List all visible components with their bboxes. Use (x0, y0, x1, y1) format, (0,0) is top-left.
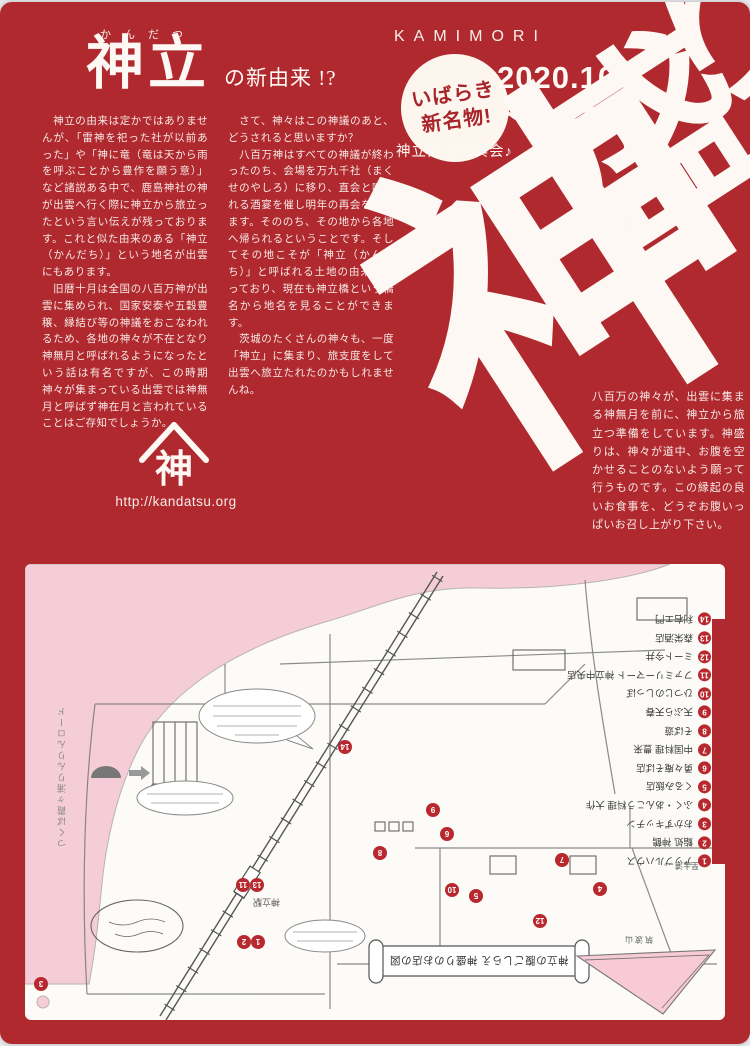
campaign-period: 2020.10.2 ～ 11.30 (497, 58, 644, 137)
legend-item-13: 13森栄酒店 (577, 629, 711, 648)
store-legend: 1アップルハウス2鮨処 神鶴3おかずキッチン4ふく・あんこう料理 大作5くるみ飯… (577, 610, 711, 870)
legend-number-badge: 5 (698, 780, 711, 793)
legend-item-6: 6勇々庵そば店 (577, 759, 711, 778)
store-map-panel: 神立駅 至土浦→ 筑波山 つくば霞ヶ浦りんりんロード 神立の腹ごしらえ 神盛りの… (25, 564, 725, 1020)
legend-number-badge: 6 (698, 762, 711, 775)
legend-label: 中国料理 豊来 (633, 742, 693, 756)
map-location-dot-14: 14 (338, 740, 352, 754)
legend-item-1: 1アップルハウス (577, 852, 711, 871)
page: 神盛り かんだつ 神立 の新由来 !? KAMIMORI いばらき 新名物! 2… (0, 0, 750, 1046)
red-ribbon (712, 619, 725, 864)
body-paragraph: 旧暦十月は全国の八百万神が出雲に集められ、国家安泰や五穀豊穣、縁結び等の神議をお… (42, 282, 208, 433)
legend-number-badge: 11 (698, 669, 711, 682)
legend-item-8: 8そば遊 (577, 722, 711, 741)
legend-item-10: 10ひつじのしっぽ (577, 684, 711, 703)
logo-kanji: 神 (155, 449, 193, 491)
map-location-dot-8: 8 (373, 846, 387, 860)
legend-number-badge: 13 (698, 631, 711, 644)
body-paragraph: 八百万神はすべての神議が終わったのち、会場を万九千社（まくせのやしろ）に移り、直… (228, 148, 394, 333)
period-start: 2020.10.2 (497, 58, 644, 98)
map-location-dot-5: 5 (469, 889, 483, 903)
legend-label: 利右エ門 (655, 612, 693, 626)
cycling-road-label: つくば霞ヶ浦りんりんロード (55, 648, 68, 848)
legend-number-badge: 14 (698, 613, 711, 626)
map-location-dot-12: 12 (533, 914, 547, 928)
legend-label: 天ぷら天春 (645, 705, 693, 719)
flyer: 神盛り かんだつ 神立 の新由来 !? KAMIMORI いばらき 新名物! 2… (0, 2, 750, 1044)
map-location-dot-9: 9 (426, 803, 440, 817)
period-end: ～ 11.30 (497, 98, 644, 138)
calligraphy-char-盛: 盛 (518, 4, 750, 281)
speech-bubbles (137, 689, 365, 952)
map-location-dot-4: 4 (593, 882, 607, 896)
legend-number-badge: 4 (698, 799, 711, 812)
body-paragraph: 茨城のたくさんの神々も、一度「神立」に集まり、旅支度をして出雲へ旅立たれたのかも… (228, 332, 394, 399)
legend-item-2: 2鮨処 神鶴 (577, 833, 711, 852)
pond-icon (37, 996, 49, 1008)
legend-label: 鮨処 神鶴 (652, 835, 693, 849)
map-location-dot-3: 3 (34, 977, 48, 991)
organizer-label: 神立商工振興会♪ (396, 140, 513, 161)
story-column-1: 神立の由来は定かではありませんが、「雷神を祀った社が以前あった」や「神に竜（竜は… (42, 114, 208, 433)
legend-number-badge: 3 (698, 817, 711, 830)
legend-label: アップルハウス (626, 854, 693, 868)
legend-number-badge: 10 (698, 687, 711, 700)
story-column-2: さて、神々はこの神議のあと、どうされると思いますか？ 八百万神はすべての神議が終… (228, 114, 394, 400)
page-title: 神立 (86, 35, 210, 93)
legend-label: 勇々庵そば店 (636, 761, 693, 775)
legend-number-badge: 8 (698, 724, 711, 737)
legend-item-9: 9天ぷら天春 (577, 703, 711, 722)
map-title-scroll: 神立の腹ごしらえ 神盛りのお店の図 (387, 953, 571, 968)
map-location-dot-2: 2 (237, 935, 251, 949)
legend-label: ふく・あんこう料理 大作 (586, 798, 693, 812)
map-location-dot-1: 1 (251, 935, 265, 949)
kamimori-description: 八百万の神々が、出雲に集まる神無月を前に、神立から旅立つ準備をしています。神盛り… (592, 388, 745, 534)
map-location-dot-11: 11 (236, 878, 250, 892)
arrow-icon (129, 766, 150, 780)
legend-label: おかずキッチン (626, 817, 693, 831)
cycling-road-area (25, 564, 670, 984)
mount-tsukuba-label: 筑波山 (623, 934, 653, 945)
map-location-dot-10: 10 (445, 883, 459, 897)
legend-item-11: 11ファミリーマート 神立中央店 (577, 666, 711, 685)
body-paragraph: 神立の由来は定かではありませんが、「雷神を祀った社が以前あった」や「神に竜（竜は… (42, 114, 208, 282)
legend-number-badge: 9 (698, 706, 711, 719)
body-paragraph: さて、神々はこの神議のあと、どうされると思いますか？ (228, 114, 394, 148)
legend-label: ミート今井 (645, 649, 693, 663)
legend-item-5: 5くるみ飯店 (577, 777, 711, 796)
legend-number-badge: 12 (698, 650, 711, 663)
mount-tsukuba-icon (577, 950, 715, 1014)
body-paragraph: 八百万の神々が、出雲に集まる神無月を前に、神立から旅立つ準備をしています。神盛り… (592, 388, 745, 534)
station-label: 神立駅 (253, 896, 280, 909)
legend-label: ファミリーマート 神立中央店 (567, 668, 693, 682)
legend-number-badge: 2 (698, 836, 711, 849)
legend-item-7: 7中国料理 豊来 (577, 740, 711, 759)
legend-label: 森栄酒店 (655, 631, 693, 645)
legend-label: くるみ飯店 (646, 780, 693, 794)
map-location-dot-7: 7 (555, 853, 569, 867)
map-location-dot-13: 13 (250, 878, 264, 892)
legend-label: ひつじのしっぽ (626, 687, 693, 701)
legend-label: そば遊 (664, 724, 693, 738)
legend-item-3: 3おかずキッチン (577, 815, 711, 834)
page-title-suffix: の新由来 !? (224, 62, 337, 92)
brand-kamimori: KAMIMORI (394, 28, 547, 46)
kandatsu-shrine-logo-icon: 神 (134, 420, 214, 492)
map-location-dot-6: 6 (440, 827, 454, 841)
legend-number-badge: 7 (698, 743, 711, 756)
website-url[interactable]: http://kandatsu.org (96, 494, 256, 509)
legend-item-14: 14利右エ門 (577, 610, 711, 629)
legend-number-badge: 1 (698, 855, 711, 868)
legend-item-4: 4ふく・あんこう料理 大作 (577, 796, 711, 815)
legend-item-12: 12ミート今井 (577, 647, 711, 666)
